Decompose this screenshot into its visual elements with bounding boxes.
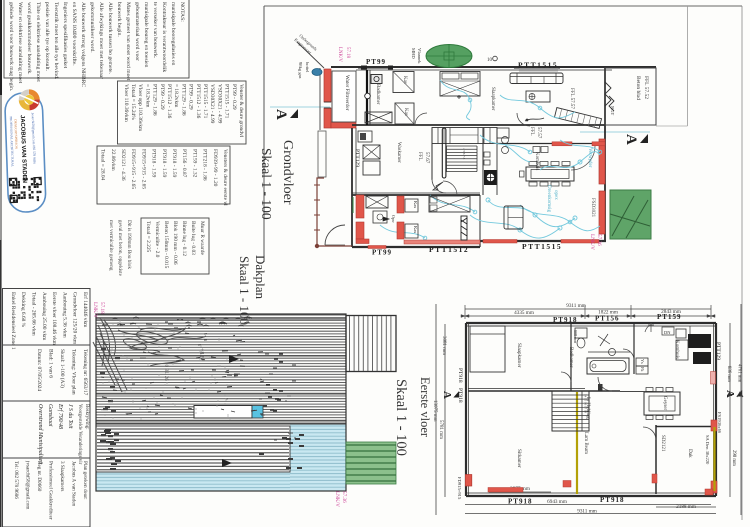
- svg-text:NGT: NGT: [610, 106, 615, 115]
- svg-text:A: A: [441, 391, 453, 399]
- svg-text:PT99: PT99: [372, 249, 392, 257]
- svg-text:Geyser: Geyser: [662, 396, 667, 410]
- svg-text:6943 mm: 6943 mm: [547, 499, 567, 505]
- svg-text:3081 mm: 3081 mm: [441, 336, 446, 355]
- svg-text:munisipale booregulasies en: munisipale booregulasies en: [170, 2, 176, 66]
- svg-text:Alle bouwerk tussen bo gemete.: Alle bouwerk tussen bo gemete.: [107, 2, 113, 75]
- svg-text:Aanbouing 25.00 vkm: Aanbouing 25.00 vkm: [41, 292, 47, 341]
- svg-text:opex: opex: [553, 190, 558, 200]
- svg-text:PTT129 - 1.86: PTT129 - 1.86: [152, 84, 158, 116]
- svg-text:Totaal - 265.66 vkm: Totaal - 265.66 vkm: [31, 292, 37, 336]
- svg-text:PTT218 - 1.86: PTT218 - 1.86: [202, 149, 208, 181]
- svg-text:gekommunikeer word.: gekommunikeer word.: [89, 2, 95, 53]
- svg-text:PTT1512 - 1.36: PTT1512 - 1.36: [166, 84, 172, 119]
- svg-text:PT156 - 0.87: PT156 - 0.87: [181, 149, 187, 178]
- svg-text:Badkamer: Badkamer: [375, 84, 380, 105]
- svg-text:Beton 150mm - 0.015: Beton 150mm - 0.015: [163, 221, 169, 269]
- svg-text:13075 mm: 13075 mm: [432, 400, 437, 422]
- svg-text:98kg gas: 98kg gas: [298, 62, 303, 79]
- svg-text:57.18: 57.18: [99, 302, 105, 314]
- svg-text:Dekking 6.68 %: Dekking 6.68 %: [20, 292, 26, 328]
- svg-text:LNK/V: LNK/V: [337, 47, 342, 62]
- svg-text:Blok 190 mm - 0.06: Blok 190 mm - 0.06: [172, 221, 178, 265]
- svg-text:Plan geteken deur:: Plan geteken deur:: [82, 461, 88, 500]
- svg-text:FD915+915: FD915+915: [457, 477, 462, 500]
- svg-text:Fk: Fk: [640, 367, 645, 372]
- svg-text:PTT129: PTT129: [354, 149, 360, 167]
- svg-text:Water Filtreerder: Water Filtreerder: [344, 75, 350, 111]
- svg-text:Tekening nr: 6563/17: Tekening nr: 6563/17: [82, 349, 88, 396]
- svg-text:VSD30X21 - 4.99: VSD30X21 - 4.99: [216, 84, 222, 124]
- svg-text:Vloer opp 110.36vkm: Vloer opp 110.36vkm: [137, 84, 143, 132]
- svg-text:4761 mm: 4761 mm: [737, 364, 742, 383]
- svg-text:FFL: FFL: [417, 152, 422, 161]
- svg-text:Jacobus A van Staden: Jacobus A van Staden: [71, 461, 77, 507]
- svg-text:Aanbouing 5.36 vkm: Aanbouing 5.36 vkm: [61, 292, 67, 338]
- svg-text:Blad: 1 van 6: Blad: 1 van 6: [48, 349, 54, 378]
- svg-text:Teenstrik moet ten alle tye be: Teenstrik moet ten alle tye bevind.: [53, 2, 59, 80]
- svg-text:posisie van alle tye op konsul: posisie van alle tye op konsult.: [44, 2, 50, 72]
- svg-text:PT918 - 1.59: PT918 - 1.59: [151, 149, 157, 178]
- svg-text:Totaal = 2.225: Totaal = 2.225: [145, 221, 151, 253]
- svg-text:10 BL 26: 10 BL 26: [163, 362, 168, 381]
- svg-text:Eerste vloer 108.46 vkm: Eerste vloer 108.46 vkm: [51, 292, 57, 346]
- svg-text:FFL: FFL: [529, 127, 534, 136]
- svg-text:Muur R waarde: Muur R waarde: [199, 221, 205, 255]
- svg-text:FD939+99 - 1.20: FD939+99 - 1.20: [212, 149, 218, 187]
- svg-text:word geakkommodeer bouwerk.: word geakkommodeer bouwerk.: [26, 2, 32, 75]
- svg-text:Professioneel Geakkrediteer: Professioneel Geakkrediteer: [48, 461, 55, 520]
- svg-text:SD2121 - 4.36: SD2121 - 4.36: [120, 149, 126, 181]
- svg-text:Opw: Opw: [391, 215, 396, 223]
- svg-text:Vlannek: Vlannek: [417, 48, 422, 64]
- svg-text:PTT1512 - 1.36: PTT1512 - 1.36: [195, 84, 201, 119]
- svg-text:Alle afwykings moet met tekena: Alle afwykings moet met tekenaar: [98, 2, 105, 79]
- svg-text:PT918: PT918: [600, 496, 624, 504]
- svg-text:Vensters & deure eerste vl: Vensters & deure eerste vl: [222, 149, 228, 206]
- svg-text:4 5 6 7 8: 4 5 6 7 8: [462, 148, 466, 160]
- svg-text:57.36: 57.36: [596, 234, 602, 246]
- svg-text:FS1936x66: FS1936x66: [717, 412, 722, 434]
- svg-text:PTT1515: PTT1515: [518, 61, 558, 70]
- svg-text:Enkel Residensieel Zone 1: Enkel Residensieel Zone 1: [10, 292, 16, 350]
- svg-text:57.36: 57.36: [341, 491, 347, 503]
- svg-text:FFL 57.52: FFL 57.52: [643, 76, 649, 99]
- svg-text:Skaal 1 - 100: Skaal 1 - 100: [259, 148, 274, 220]
- svg-text:PT159 - 1.32: PT159 - 1.32: [191, 149, 197, 178]
- svg-text:PT918 - 1.59: PT918 - 1.59: [171, 149, 177, 178]
- svg-text:Tel: 082 578 9686: Tel: 082 578 9686: [13, 461, 19, 499]
- svg-text:Dit is 190mm Bou blok: Dit is 190mm Bou blok: [126, 220, 132, 269]
- svg-text:gevul met beton, opgekiste: gevul met beton, opgekiste: [117, 220, 123, 277]
- svg-text:jvsarchi58@gmail.com: jvsarchi58@gmail.com: [25, 460, 31, 509]
- svg-text:Kontrakteur is verantwoordelik: Kontrakteur is verantwoordelik: [161, 2, 167, 72]
- svg-text:PT99 - 0.29: PT99 - 0.29: [159, 84, 165, 110]
- svg-text:SA Den 30x220: SA Den 30x220: [705, 435, 710, 465]
- svg-text:Kombuis: Kombuis: [674, 340, 680, 359]
- svg-text:Overstrand Munisipaliteit: Overstrand Munisipaliteit: [37, 404, 43, 465]
- svg-text:Waskamer: Waskamer: [396, 142, 401, 163]
- svg-text:Oreenkomsig: Oreenkomsig: [546, 185, 551, 212]
- svg-text:Water en elektriese aansluitin: Water en elektriese aansluiting moet: [17, 2, 23, 84]
- svg-text:Alle bouwerk streng volgens NH: Alle bouwerk streng volgens NHBRC: [80, 2, 86, 87]
- svg-text:22.86vkm: 22.86vkm: [110, 149, 116, 172]
- svg-text:Skaal: 1-100 (A3): Skaal: 1-100 (A3): [59, 349, 66, 388]
- svg-text:Sitkamer: Sitkamer: [516, 449, 522, 468]
- svg-text:PT99 - 0.29: PT99 - 0.29: [188, 84, 194, 110]
- svg-text:met vermiculite gemeng: met vermiculite gemeng: [108, 220, 114, 271]
- svg-text:PT99 - 0.29: PT99 - 0.29: [231, 84, 237, 110]
- svg-text:PT99: PT99: [366, 58, 386, 66]
- svg-text:4335 mm: 4335 mm: [514, 310, 534, 316]
- svg-text:PTT129 - 1.86: PTT129 - 1.86: [180, 84, 186, 116]
- svg-text:Tekening: Vloer plan: Tekening: Vloer plan: [71, 349, 77, 395]
- svg-text:PT918: PT918: [457, 368, 463, 383]
- svg-text:PTT1515 - 1.71: PTT1515 - 1.71: [202, 84, 208, 119]
- svg-text:PT156: PT156: [595, 315, 619, 323]
- svg-text:836 mm: 836 mm: [726, 366, 731, 382]
- svg-text:Erf 790/48: Erf 790/48: [57, 403, 64, 429]
- svg-text:290 mm: 290 mm: [731, 450, 736, 466]
- svg-text:DN: DN: [664, 330, 671, 335]
- svg-text:MHD: MHD: [411, 48, 416, 59]
- svg-text:5781 mm: 5781 mm: [438, 420, 443, 439]
- svg-text:SD2121: SD2121: [660, 435, 665, 452]
- svg-text:te verseker van bouwerk.: te verseker van bouwerk.: [152, 2, 158, 59]
- svg-text:PT159: PT159: [657, 313, 681, 321]
- svg-text:Venster & deure grondvl: Venster & deure grondvl: [238, 84, 244, 138]
- svg-text:In Holding: In Holding: [585, 397, 590, 419]
- svg-text:Grondvloer 125/20 vkm: Grondvloer 125/20 vkm: [72, 292, 78, 345]
- svg-text:LNK/V: LNK/V: [334, 491, 340, 507]
- svg-text:PT918: PT918: [508, 498, 532, 506]
- svg-text:FFL 57.57: FFL 57.57: [569, 88, 574, 109]
- svg-text:Totaal = 28.04: Totaal = 28.04: [100, 149, 106, 181]
- svg-text:Dak: Dak: [687, 449, 693, 458]
- svg-text:Eerste vloer: Eerste vloer: [418, 377, 432, 438]
- svg-text:Reg nr. D0660: Reg nr. D0660: [36, 461, 42, 492]
- svg-text:Dakplan: Dakplan: [253, 255, 268, 300]
- svg-text:bottel: bottel: [305, 62, 310, 73]
- svg-text:NOTAS:: NOTAS:: [179, 2, 185, 22]
- svg-text:Thite en elektriese aansluitin: Thite en elektriese aansluiting moet: [35, 2, 41, 82]
- svg-text:A: A: [623, 134, 639, 145]
- svg-text:Kas: Kas: [413, 201, 418, 208]
- svg-text:57.18: 57.18: [345, 47, 350, 59]
- svg-text:57.67: 57.67: [424, 152, 429, 164]
- svg-text:en SANS 10400 voorskrifte.: en SANS 10400 voorskrifte.: [71, 2, 78, 66]
- svg-text:PTT1515 - 1.71: PTT1515 - 1.71: [224, 84, 230, 119]
- svg-text:Gansbaai: Gansbaai: [47, 404, 53, 427]
- svg-text:PTT1512: PTT1512: [429, 245, 469, 254]
- svg-text:= 18.2vkm: = 18.2vkm: [173, 84, 179, 108]
- svg-text:PT918 - 1.59: PT918 - 1.59: [161, 149, 167, 178]
- svg-text:Lam Beam: Lam Beam: [583, 432, 588, 454]
- svg-text:Mates gemeet van stoot word mo: Mates gemeet van stoot word moet: [125, 2, 131, 81]
- svg-text:Slaapkamer: Slaapkamer: [490, 87, 495, 111]
- svg-text:Vloer 110.36vkm: Vloer 110.36vkm: [123, 84, 129, 123]
- svg-text:geboumateriaal word voor: geboumateriaal word voor: [134, 2, 140, 61]
- svg-text:= 18.2vkm: = 18.2vkm: [144, 84, 150, 108]
- svg-text:Binne lug - 0.12: Binne lug - 0.12: [181, 221, 187, 256]
- svg-text:Ys: Ys: [640, 359, 645, 364]
- svg-text:57.57: 57.57: [536, 127, 541, 139]
- svg-text:Kas: Kas: [413, 226, 418, 233]
- svg-text:Datum: 07/05/2024: Datum: 07/05/2024: [36, 349, 42, 391]
- svg-text:PTT1515: PTT1515: [522, 242, 562, 251]
- svg-text:3 Slaapkamers: 3 Slaapkamers: [59, 461, 65, 491]
- svg-text:Ingeniers spesifikasies gasket: Ingeniers spesifikasies gasket: [62, 2, 69, 69]
- svg-text:bouwerk begin.: bouwerk begin.: [116, 2, 122, 37]
- svg-text:Totaal = 15.24%: Totaal = 15.24%: [130, 84, 136, 120]
- svg-text:LNK/V: LNK/V: [92, 302, 98, 318]
- svg-text:Verwyder: Verwyder: [587, 148, 592, 168]
- svg-text:Erf 144046 vkm: Erf 144046 vkm: [82, 292, 89, 328]
- svg-text:munisipale boureg en toesien: munisipale boureg en toesien: [143, 2, 149, 68]
- svg-text:J S du Toit: J S du Toit: [67, 404, 73, 429]
- svg-text:Grondvloer: Grondvloer: [280, 140, 295, 205]
- svg-text:PT918: PT918: [457, 388, 463, 403]
- svg-text:9311 mm: 9311 mm: [566, 303, 586, 309]
- svg-text:Voorgestelde Veranderings vir: Voorgestelde Veranderings vir: [77, 404, 82, 465]
- svg-text:Vermiculite - 2.0: Vermiculite - 2.0: [154, 221, 160, 258]
- svg-text:Slaapkamer: Slaapkamer: [516, 343, 522, 368]
- svg-text:Buite lug - 0.03: Buite lug - 0.03: [190, 221, 196, 255]
- svg-text:Beskrywing:: Beskrywing:: [84, 404, 89, 430]
- svg-text:A: A: [273, 109, 289, 120]
- svg-text:9311 mm: 9311 mm: [577, 509, 597, 515]
- svg-text:FD915+915 - 2.65: FD915+915 - 2.65: [130, 149, 136, 189]
- svg-text:FD915+915 - 2.65: FD915+915 - 2.65: [140, 149, 146, 189]
- svg-text:Beton blad: Beton blad: [635, 76, 641, 100]
- svg-text:Badkamer: Badkamer: [568, 347, 573, 368]
- svg-text:gebiede word voor bouwerk mag: gebiede word voor bouwerk mag begin.: [8, 2, 14, 92]
- svg-text:VSD30X21 - 4.99: VSD30X21 - 4.99: [209, 84, 215, 124]
- svg-text:10: 10: [487, 58, 493, 63]
- svg-text:FSD3021: FSD3021: [590, 198, 595, 218]
- svg-text:LNK/V: LNK/V: [589, 234, 595, 250]
